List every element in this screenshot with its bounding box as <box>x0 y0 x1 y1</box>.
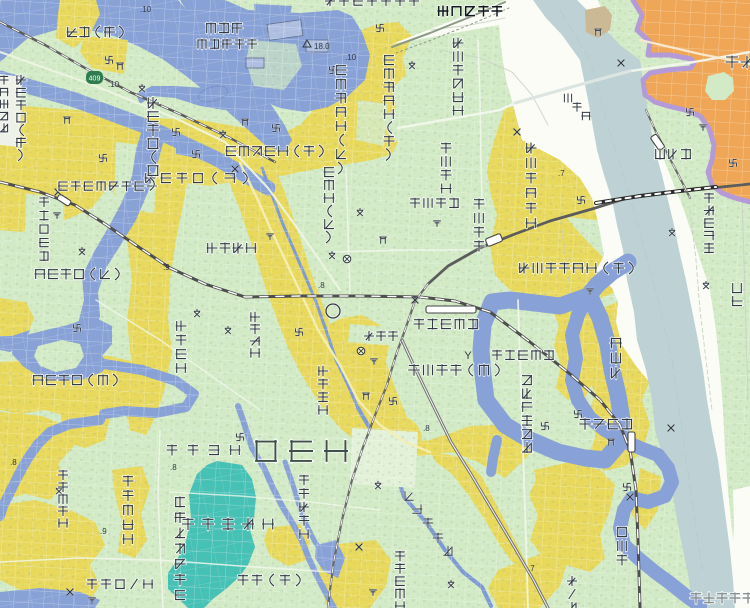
svg-text:Y: Y <box>464 350 472 362</box>
svg-text:.8: .8 <box>318 281 325 290</box>
svg-text:.9: .9 <box>100 527 107 536</box>
svg-text:18.0: 18.0 <box>314 42 330 51</box>
svg-text:409: 409 <box>89 76 101 83</box>
svg-text:.9: .9 <box>163 263 170 272</box>
svg-text:.8: .8 <box>423 424 430 433</box>
svg-text:.7: .7 <box>528 564 535 573</box>
svg-text:.8: .8 <box>170 463 177 472</box>
svg-text:.7: .7 <box>558 169 565 178</box>
svg-text:.10: .10 <box>108 80 120 89</box>
svg-text:.8: .8 <box>10 458 17 467</box>
svg-text:.10: .10 <box>140 5 152 14</box>
svg-text:.10: .10 <box>345 53 357 62</box>
